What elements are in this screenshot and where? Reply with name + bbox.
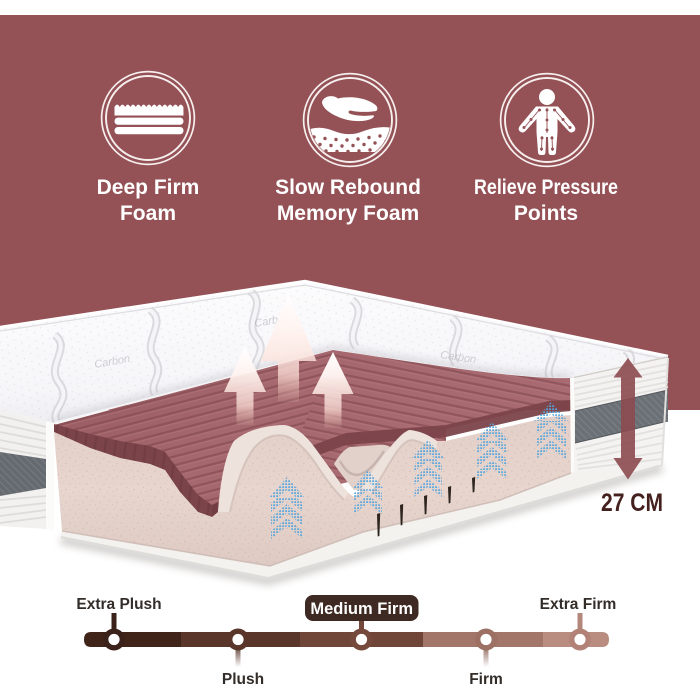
svg-text:Plush: Plush (222, 671, 264, 688)
svg-text:Extra Firm: Extra Firm (540, 596, 617, 613)
svg-text:Slow Rebound: Slow Rebound (275, 176, 421, 199)
svg-text:Relieve Pressure: Relieve Pressure (474, 176, 618, 199)
svg-text:Extra Plush: Extra Plush (76, 596, 161, 613)
svg-text:Memory Foam: Memory Foam (277, 202, 419, 225)
svg-text:27 CM: 27 CM (601, 489, 663, 517)
svg-text:Firm: Firm (469, 671, 503, 688)
svg-text:Points: Points (514, 202, 578, 225)
svg-text:Medium Firm: Medium Firm (310, 600, 413, 618)
svg-text:Foam: Foam (120, 202, 176, 225)
svg-text:Deep Firm: Deep Firm (97, 176, 200, 199)
